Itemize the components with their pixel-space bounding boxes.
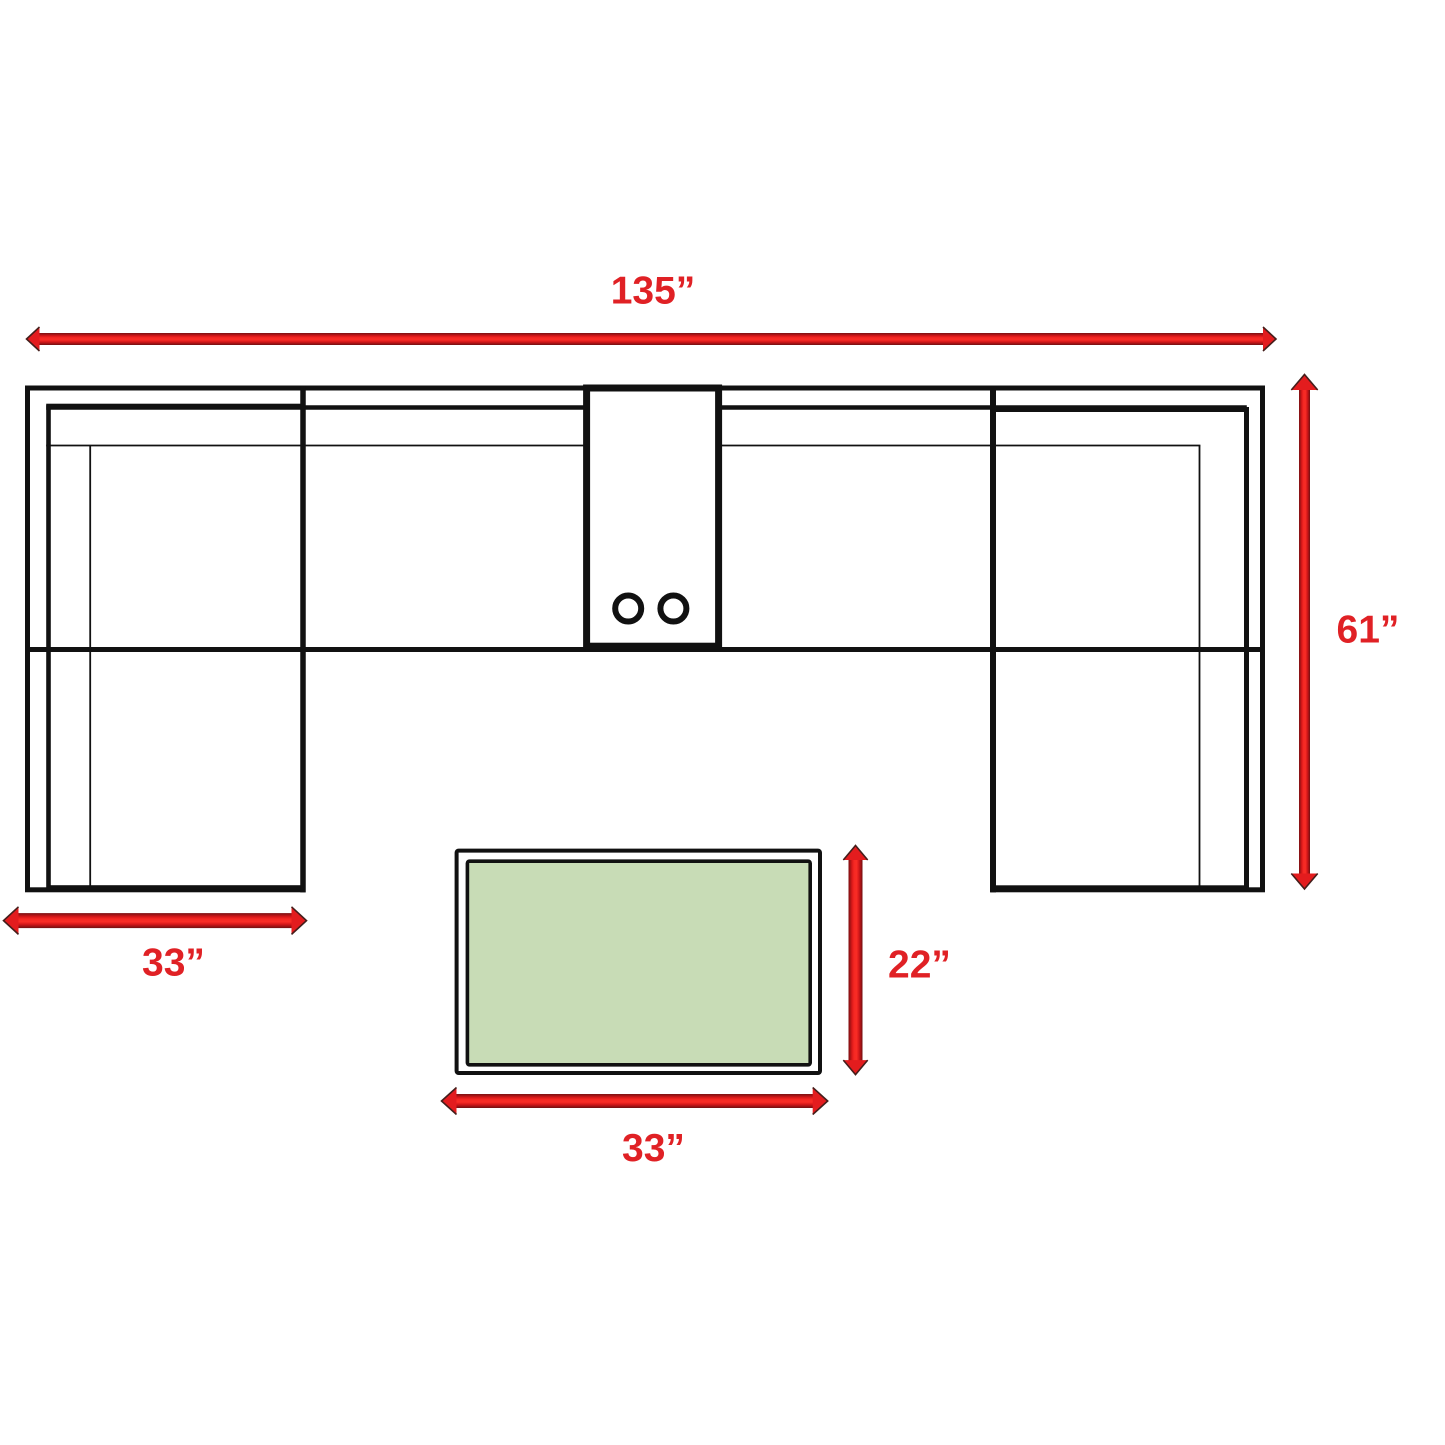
svg-text:135”: 135”: [611, 270, 696, 313]
svg-text:61”: 61”: [1337, 609, 1400, 652]
svg-text:33”: 33”: [142, 941, 205, 984]
svg-text:33”: 33”: [622, 1127, 685, 1170]
svg-text:22”: 22”: [888, 944, 951, 987]
